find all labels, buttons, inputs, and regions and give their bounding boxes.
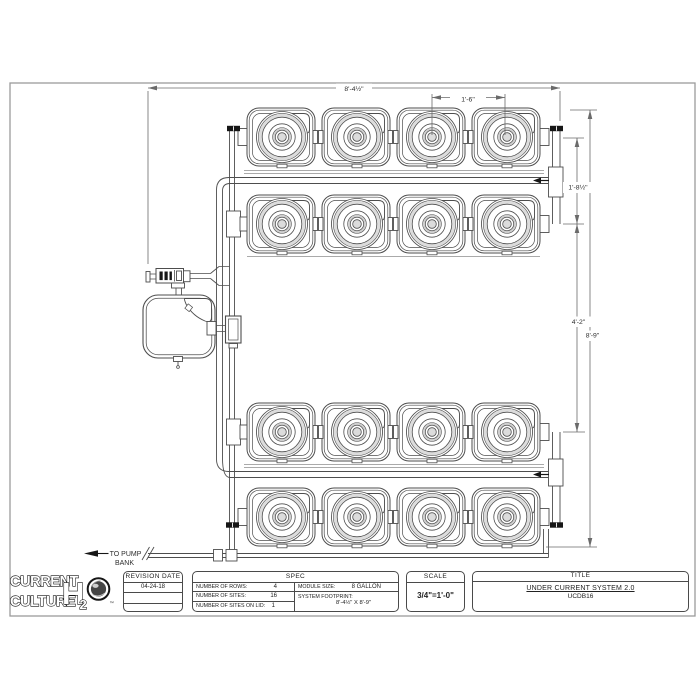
logo-current-culture-h2o: CURRENT CULTURE H 2 ™ bbox=[10, 574, 114, 612]
spec-module-label: MODULE SIZE: bbox=[298, 583, 352, 592]
drawing-title: UNDER CURRENT SYSTEM 2.0 bbox=[473, 585, 688, 592]
spec-row-sites: NUMBER OF SITES: 16 bbox=[193, 592, 294, 601]
module-r1c3 bbox=[397, 108, 465, 168]
revision-empty-row-2 bbox=[124, 604, 182, 613]
grow-modules bbox=[247, 108, 540, 548]
spec-left-column: NUMBER OF ROWS: 4 NUMBER OF SITES: 16 NU… bbox=[193, 583, 294, 611]
spec-row-lid: NUMBER OF SITES ON LID: 1 bbox=[193, 602, 294, 611]
spec-lid-value: 1 bbox=[272, 602, 291, 611]
spec-lid-label: NUMBER OF SITES ON LID: bbox=[196, 602, 272, 611]
spec-rows-label: NUMBER OF ROWS: bbox=[196, 583, 274, 592]
spec-block: SPEC NUMBER OF ROWS: 4 NUMBER OF SITES: … bbox=[192, 571, 399, 612]
globe-icon bbox=[88, 578, 110, 600]
spec-sites-value: 16 bbox=[270, 592, 291, 601]
spec-footprint-label: SYSTEM FOOTPRINT: bbox=[295, 592, 398, 600]
spec-sites-label: NUMBER OF SITES: bbox=[196, 592, 270, 601]
spec-header: SPEC bbox=[193, 572, 398, 583]
dim-row-spacing: 1'-8½" bbox=[568, 184, 588, 192]
revision-date: 04-24-18 bbox=[124, 583, 182, 593]
revision-block: REVISION DATE 04-24-18 bbox=[123, 571, 183, 612]
module-r3c3 bbox=[397, 403, 465, 463]
scale-block: SCALE 3/4"=1'-0" bbox=[406, 571, 465, 612]
module-r3c1 bbox=[247, 403, 315, 463]
pump-note-line1: TO PUMP bbox=[110, 551, 142, 558]
revision-header: REVISION DATE bbox=[124, 572, 182, 583]
module-r3c4 bbox=[472, 403, 540, 463]
scale-value: 3/4"=1'-0" bbox=[407, 583, 464, 608]
module-r4c2 bbox=[322, 488, 390, 548]
logo-2: 2 bbox=[80, 597, 87, 612]
pump-note-line2: BANK bbox=[115, 560, 134, 567]
drawing-number: UCDB16 bbox=[473, 593, 688, 600]
module-r1c4 bbox=[472, 108, 540, 168]
revision-empty-row-1 bbox=[124, 593, 182, 603]
dim-overall-width: 8'-4½" bbox=[344, 85, 364, 93]
title-block: TITLE UNDER CURRENT SYSTEM 2.0 UCDB16 bbox=[472, 571, 689, 612]
spec-right-column: MODULE SIZE: 8 GALLON SYSTEM FOOTPRINT: … bbox=[294, 583, 398, 611]
module-r2c3 bbox=[397, 195, 465, 255]
module-r1c2 bbox=[322, 108, 390, 168]
module-r3c2 bbox=[322, 403, 390, 463]
spec-rows-value: 4 bbox=[274, 583, 291, 592]
module-r4c1 bbox=[247, 488, 315, 548]
dim-overall-height: 8'-9" bbox=[586, 333, 600, 340]
logo-trademark: ™ bbox=[110, 601, 115, 606]
scale-header: SCALE bbox=[407, 572, 464, 583]
module-r1c1 bbox=[247, 108, 315, 168]
module-r2c2 bbox=[322, 195, 390, 255]
module-r2c4 bbox=[472, 195, 540, 255]
module-r2c1 bbox=[247, 195, 315, 255]
dim-group-spacing: 4'-2" bbox=[572, 319, 586, 326]
module-r4c4 bbox=[472, 488, 540, 548]
spec-row-module: MODULE SIZE: 8 GALLON bbox=[295, 583, 398, 592]
module-r4c3 bbox=[397, 488, 465, 548]
spec-footprint-value: 8'-4½" X 8'-9" bbox=[295, 600, 398, 606]
epicenter-reservoir bbox=[143, 267, 241, 369]
dim-col-spacing: 1'-6" bbox=[461, 96, 475, 103]
drawing-sheet: 8'-4½" 1'-6" 1'-8½" 4'-2" 8'-9" TO PUMP … bbox=[0, 0, 700, 700]
title-header: TITLE bbox=[473, 572, 688, 582]
spec-module-value: 8 GALLON bbox=[352, 583, 395, 592]
